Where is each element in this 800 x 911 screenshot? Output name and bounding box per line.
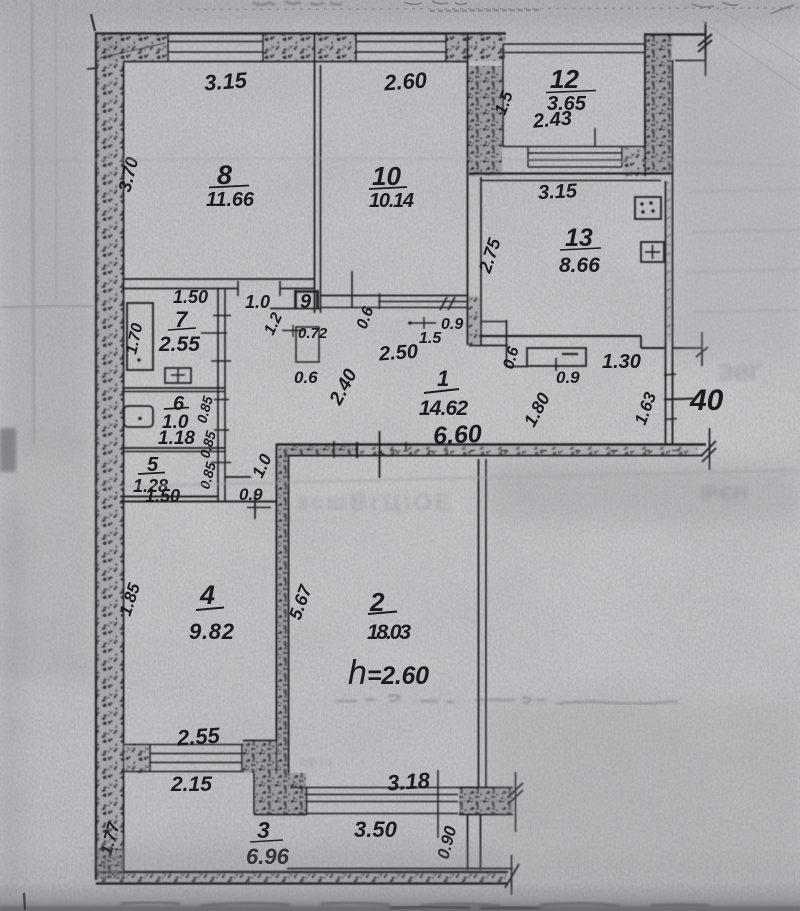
svg-text:9.82: 9.82 [189, 619, 235, 644]
svg-text:2.55: 2.55 [175, 723, 221, 751]
svg-text:2.55: 2.55 [158, 333, 200, 356]
svg-text:1.30: 1.30 [602, 351, 641, 373]
svg-text:h: h [348, 654, 367, 692]
svg-text:2.50: 2.50 [377, 341, 418, 366]
svg-text:3: 3 [257, 817, 270, 843]
svg-text:зсшВгЦіОЕ: зсшВгЦіОЕ [296, 489, 454, 516]
svg-text:18.03: 18.03 [367, 621, 411, 644]
svg-text:2.60: 2.60 [382, 67, 428, 95]
svg-text:0.9: 0.9 [239, 485, 263, 504]
svg-text:4: 4 [199, 580, 215, 610]
svg-text:3.15: 3.15 [203, 67, 248, 95]
svg-text:2.15: 2.15 [170, 773, 212, 796]
svg-text:ЭВГ: ЭВГ [718, 360, 763, 385]
svg-text:1.18: 1.18 [158, 428, 195, 449]
svg-text:40: 40 [689, 384, 724, 417]
svg-text:пф нв: пф нв [300, 755, 333, 769]
svg-text:1.0: 1.0 [245, 292, 270, 312]
svg-text:8: 8 [217, 160, 232, 190]
svg-text:ІРЄН: ІРЄН [700, 483, 748, 505]
svg-text:10: 10 [372, 161, 401, 191]
svg-text:6.60: 6.60 [432, 420, 482, 451]
svg-text:14.62: 14.62 [419, 397, 468, 420]
svg-text:=2.60: =2.60 [367, 662, 429, 690]
svg-text:3.18: 3.18 [386, 768, 431, 796]
svg-text:9: 9 [300, 291, 312, 313]
svg-text:0.9: 0.9 [556, 368, 580, 387]
svg-text:12: 12 [550, 64, 579, 94]
svg-text:0.72: 0.72 [298, 325, 328, 342]
svg-text:3.15: 3.15 [537, 180, 578, 204]
svg-text:11.66: 11.66 [206, 189, 255, 211]
svg-text:8.66: 8.66 [559, 254, 600, 277]
svg-text:1.50: 1.50 [173, 287, 208, 307]
svg-text:1.50: 1.50 [145, 486, 180, 506]
svg-text:1.5: 1.5 [419, 330, 442, 347]
svg-text:0.9: 0.9 [441, 316, 463, 333]
svg-text:3.50: 3.50 [354, 817, 398, 842]
svg-text:2.43: 2.43 [531, 107, 573, 132]
svg-text:10.14: 10.14 [369, 190, 414, 212]
svg-text:0.6: 0.6 [294, 368, 318, 387]
svg-text:1: 1 [437, 366, 449, 391]
